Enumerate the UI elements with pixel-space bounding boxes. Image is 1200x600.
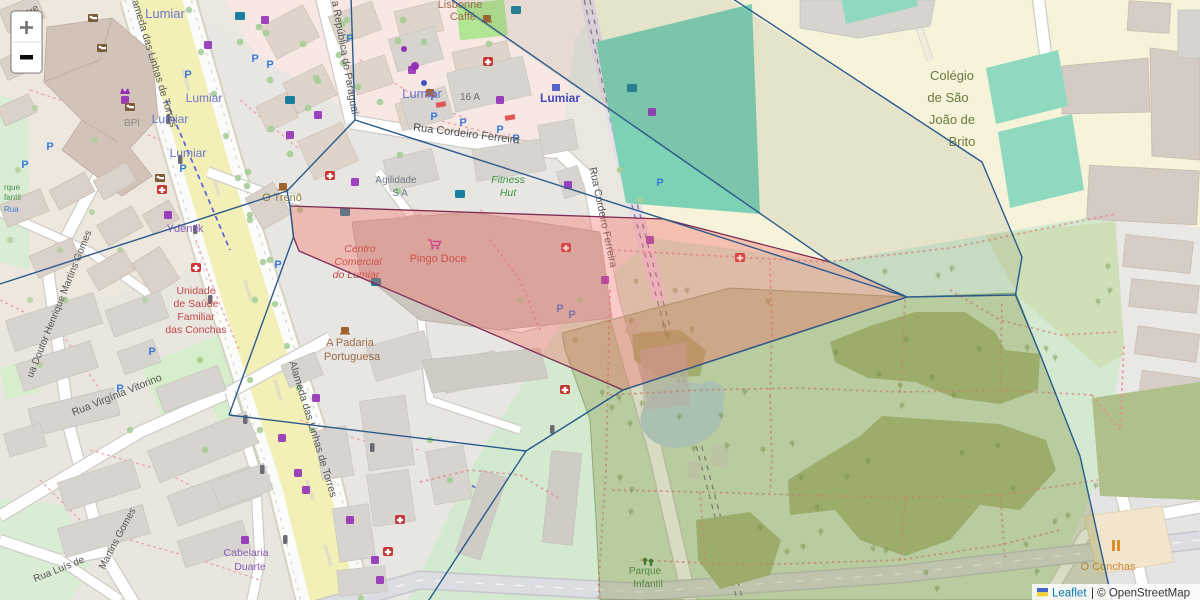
svg-text:Cabelaria: Cabelaria <box>224 547 269 559</box>
svg-text:Lumiar: Lumiar <box>540 91 580 105</box>
svg-text:Hut: Hut <box>500 187 517 199</box>
svg-text:P: P <box>430 111 437 123</box>
svg-text:P: P <box>656 177 663 189</box>
svg-text:P: P <box>148 346 155 358</box>
svg-text:das Conchas: das Conchas <box>165 324 226 336</box>
svg-text:Lumiar: Lumiar <box>170 146 207 160</box>
svg-text:Leaflet: Leaflet <box>1052 588 1087 600</box>
svg-text:P: P <box>184 69 191 81</box>
svg-text:A Padaria: A Padaria <box>326 337 375 349</box>
svg-text:Portuguesa: Portuguesa <box>324 351 381 363</box>
svg-text:Fitness: Fitness <box>491 174 526 186</box>
svg-text:O Trenó: O Trenó <box>262 192 302 204</box>
svg-text:BPI: BPI <box>124 118 140 129</box>
svg-text:Rua: Rua <box>4 205 19 214</box>
svg-text:Agilidade: Agilidade <box>375 175 417 186</box>
svg-text:P: P <box>251 53 258 65</box>
svg-text:P: P <box>266 59 273 71</box>
svg-text:P: P <box>21 159 28 171</box>
svg-text:de São: de São <box>927 90 968 105</box>
svg-text:de Saúde: de Saúde <box>174 298 219 310</box>
svg-text:Lumiar: Lumiar <box>402 86 442 101</box>
svg-text:rque: rque <box>4 183 21 192</box>
svg-text:Lumiar: Lumiar <box>152 112 189 126</box>
svg-text:S A: S A <box>392 188 408 199</box>
svg-text:16 A: 16 A <box>460 92 480 103</box>
svg-text:Duarte: Duarte <box>234 561 266 573</box>
svg-text:Colégio: Colégio <box>930 68 974 83</box>
svg-text:Ydentik: Ydentik <box>167 223 204 235</box>
svg-text:fantil: fantil <box>4 193 21 202</box>
svg-text:P: P <box>274 259 281 271</box>
svg-text:Lumiar: Lumiar <box>186 91 223 105</box>
svg-text:Unidade: Unidade <box>176 285 215 297</box>
svg-text:P: P <box>46 141 53 153</box>
svg-text:| © OpenStreetMap: | © OpenStreetMap <box>1091 588 1190 600</box>
svg-text:P: P <box>179 163 186 175</box>
svg-text:Lumiar: Lumiar <box>145 6 185 21</box>
svg-text:João de: João de <box>929 112 975 127</box>
svg-text:Familiar: Familiar <box>177 311 215 323</box>
